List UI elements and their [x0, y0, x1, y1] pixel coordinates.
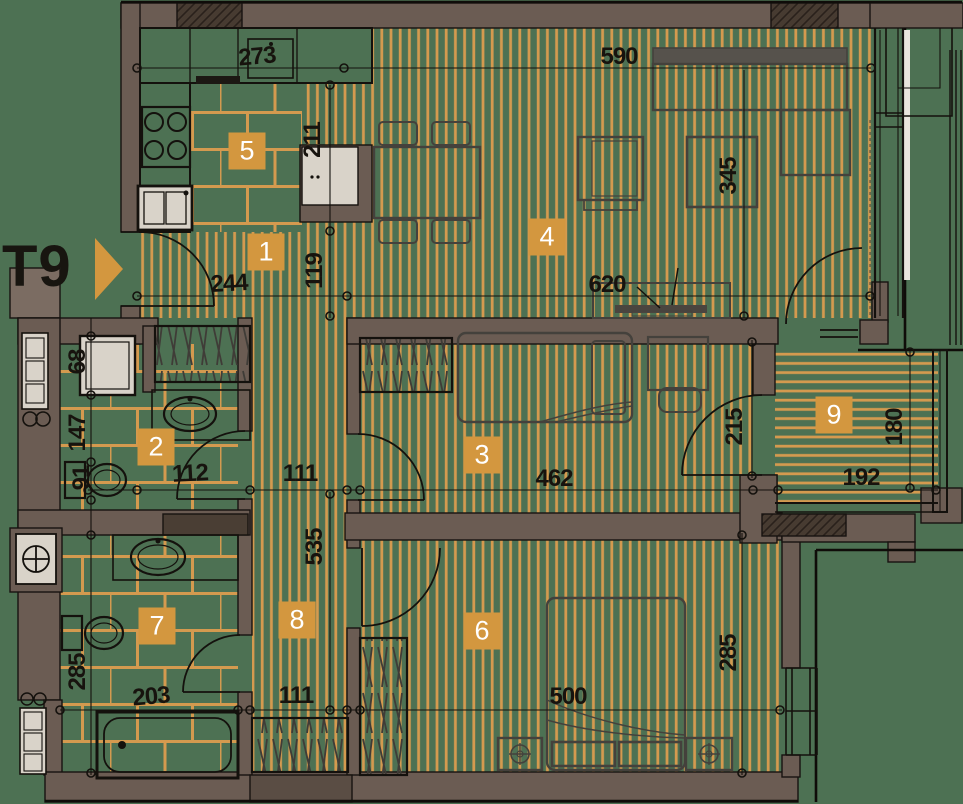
floor-plan: T9 1 2 3 4 5 6 7 8 9 273 590 211 345 244… [0, 0, 963, 804]
room-badge-5: 5 [229, 133, 266, 170]
dim-500: 500 [549, 683, 586, 711]
dim-620: 620 [588, 271, 625, 299]
dim-203: 203 [131, 681, 170, 712]
dim-111a: 111 [283, 460, 317, 488]
room-badge-9: 9 [816, 397, 853, 434]
unit-title: T9 [2, 238, 72, 296]
room-badge-6: 6 [464, 613, 501, 650]
room-badge-1: 1 [248, 234, 285, 271]
annotation-overlay: T9 1 2 3 4 5 6 7 8 9 273 590 211 345 244… [0, 0, 963, 804]
room-badge-3: 3 [464, 437, 501, 474]
dim-91: 91 [68, 466, 96, 491]
dim-590: 590 [600, 43, 637, 71]
dim-112: 112 [171, 459, 208, 489]
dim-111b: 111 [279, 682, 313, 710]
dim-345: 345 [715, 157, 743, 194]
dim-215: 215 [721, 408, 749, 445]
entrance-arrow-icon [95, 238, 123, 300]
dim-211: 211 [299, 122, 327, 158]
dim-462: 462 [535, 465, 572, 493]
dim-273: 273 [237, 41, 276, 72]
dim-180: 180 [881, 408, 909, 445]
room-badge-8: 8 [279, 602, 316, 639]
dim-68: 68 [64, 350, 92, 375]
dim-147: 147 [64, 414, 92, 451]
dim-285b: 285 [715, 634, 743, 671]
dim-192: 192 [842, 464, 879, 492]
room-badge-2: 2 [138, 429, 175, 466]
dim-244: 244 [210, 269, 248, 299]
room-badge-4: 4 [529, 219, 566, 256]
dim-535: 535 [301, 528, 329, 565]
dim-119: 119 [301, 253, 329, 289]
dim-285a: 285 [64, 653, 92, 690]
room-badge-7: 7 [139, 608, 176, 645]
